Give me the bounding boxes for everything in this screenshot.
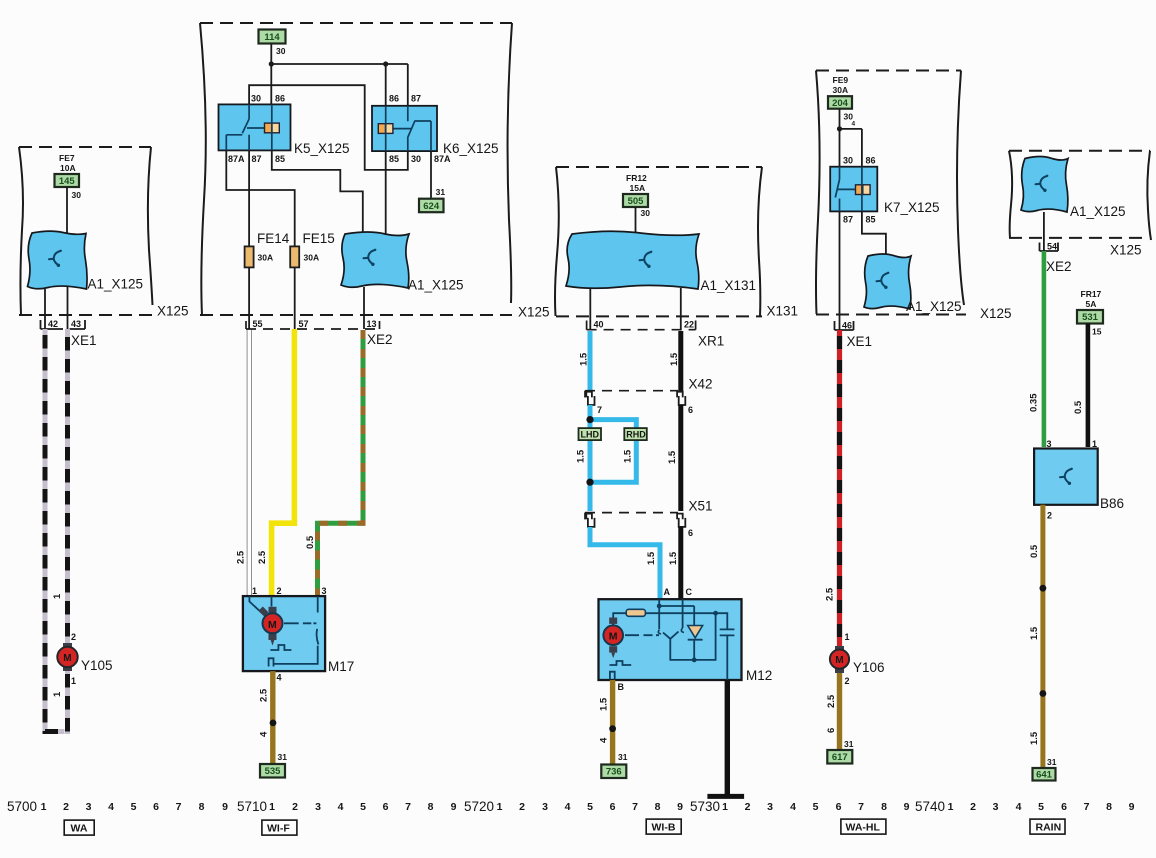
svg-text:87: 87 [411, 94, 421, 104]
svg-text:6: 6 [383, 801, 389, 813]
svg-text:8: 8 [199, 801, 205, 813]
svg-text:A: A [664, 587, 671, 597]
svg-text:XE2: XE2 [1046, 259, 1072, 274]
svg-text:31: 31 [436, 187, 446, 197]
svg-text:XR1: XR1 [698, 334, 724, 349]
svg-text:114: 114 [264, 32, 280, 43]
svg-text:6: 6 [610, 801, 616, 813]
svg-text:30: 30 [251, 94, 261, 104]
svg-text:4: 4 [599, 737, 610, 743]
svg-text:31: 31 [1047, 757, 1057, 767]
svg-text:3: 3 [315, 801, 321, 813]
svg-text:8: 8 [428, 801, 434, 813]
svg-text:Y105: Y105 [81, 658, 113, 673]
svg-text:3: 3 [86, 801, 92, 813]
svg-text:1.5: 1.5 [576, 449, 587, 463]
svg-text:3: 3 [993, 801, 999, 813]
svg-text:505: 505 [628, 196, 645, 207]
svg-text:K6_X125: K6_X125 [443, 141, 499, 156]
svg-text:A1_X131: A1_X131 [701, 278, 757, 293]
svg-text:B: B [618, 682, 625, 692]
svg-text:FR12: FR12 [626, 173, 647, 183]
svg-text:204: 204 [832, 98, 849, 109]
svg-text:2.5: 2.5 [259, 688, 270, 702]
svg-text:2: 2 [745, 801, 751, 813]
svg-text:4: 4 [790, 801, 796, 813]
svg-text:30: 30 [641, 208, 651, 218]
svg-text:0.5: 0.5 [1073, 400, 1084, 414]
svg-text:A1_X125: A1_X125 [88, 277, 144, 292]
svg-text:8: 8 [1106, 801, 1112, 813]
svg-text:RHD: RHD [626, 430, 646, 440]
svg-text:2: 2 [292, 801, 298, 813]
svg-text:7: 7 [1084, 801, 1090, 813]
svg-text:1: 1 [845, 632, 850, 642]
svg-text:6: 6 [153, 801, 159, 813]
svg-text:4: 4 [277, 673, 282, 683]
svg-text:1.5: 1.5 [646, 551, 657, 565]
svg-text:4: 4 [108, 801, 114, 813]
svg-text:87: 87 [843, 215, 853, 225]
svg-text:1.5: 1.5 [623, 449, 634, 463]
svg-text:4: 4 [852, 121, 856, 128]
svg-text:1.5: 1.5 [668, 551, 679, 565]
svg-text:Y106: Y106 [853, 660, 885, 675]
svg-text:535: 535 [265, 766, 282, 777]
svg-text:9: 9 [451, 801, 457, 813]
svg-text:1: 1 [52, 593, 63, 599]
svg-text:M12: M12 [746, 668, 772, 683]
svg-text:736: 736 [606, 767, 622, 778]
svg-text:85: 85 [389, 154, 399, 164]
svg-text:1: 1 [269, 801, 275, 813]
svg-text:7: 7 [858, 801, 864, 813]
svg-text:31: 31 [844, 739, 854, 749]
svg-text:6: 6 [836, 801, 842, 813]
svg-text:5700: 5700 [7, 799, 37, 814]
svg-text:86: 86 [389, 94, 399, 104]
svg-text:531: 531 [1082, 312, 1099, 323]
svg-text:7: 7 [176, 801, 182, 813]
svg-text:9: 9 [1129, 801, 1135, 813]
svg-text:FE7: FE7 [59, 153, 75, 163]
svg-text:30A: 30A [304, 253, 320, 263]
svg-text:5: 5 [360, 801, 366, 813]
svg-text:M: M [268, 619, 277, 631]
svg-text:87: 87 [252, 154, 262, 164]
svg-text:FE15: FE15 [303, 231, 335, 246]
svg-text:30A: 30A [833, 85, 849, 95]
svg-text:2.5: 2.5 [236, 550, 247, 564]
svg-text:XE2: XE2 [367, 332, 393, 347]
svg-text:FE14: FE14 [257, 231, 290, 246]
svg-text:22: 22 [684, 320, 694, 330]
svg-text:X131: X131 [767, 304, 799, 319]
svg-text:5740: 5740 [915, 799, 945, 814]
svg-text:4: 4 [338, 801, 344, 813]
svg-text:1: 1 [41, 801, 47, 813]
svg-text:6: 6 [826, 728, 837, 733]
svg-text:1: 1 [252, 586, 257, 596]
svg-text:617: 617 [832, 752, 848, 763]
svg-text:86: 86 [275, 94, 285, 104]
svg-text:1.5: 1.5 [579, 352, 590, 366]
svg-text:RAIN: RAIN [1036, 822, 1062, 834]
svg-text:3: 3 [767, 801, 773, 813]
svg-text:XE1: XE1 [71, 333, 97, 348]
svg-text:3: 3 [542, 801, 548, 813]
svg-text:2: 2 [63, 801, 69, 813]
svg-text:2: 2 [277, 586, 282, 596]
svg-text:9: 9 [222, 801, 228, 813]
svg-text:7: 7 [405, 801, 411, 813]
svg-text:30: 30 [411, 154, 421, 164]
svg-text:43: 43 [71, 319, 81, 329]
svg-text:XE1: XE1 [847, 334, 873, 349]
svg-text:2.5: 2.5 [257, 550, 268, 564]
svg-text:85: 85 [275, 154, 285, 164]
svg-text:31: 31 [278, 752, 288, 762]
svg-text:X42: X42 [689, 377, 713, 392]
svg-text:15: 15 [1092, 327, 1102, 337]
svg-text:85: 85 [866, 215, 876, 225]
svg-text:FR17: FR17 [1081, 289, 1102, 299]
svg-text:54: 54 [1047, 242, 1057, 252]
svg-text:1: 1 [497, 801, 503, 813]
svg-text:4: 4 [565, 801, 571, 813]
svg-text:7: 7 [597, 405, 602, 415]
svg-text:M: M [835, 655, 843, 666]
svg-text:5: 5 [813, 801, 819, 813]
svg-text:WA-HL: WA-HL [846, 822, 881, 834]
svg-text:1.5: 1.5 [1029, 626, 1040, 640]
svg-text:WI-F: WI-F [267, 823, 290, 835]
svg-text:5720: 5720 [464, 799, 494, 814]
svg-text:2.5: 2.5 [825, 587, 836, 601]
svg-text:55: 55 [253, 319, 263, 329]
svg-text:641: 641 [1036, 770, 1053, 781]
svg-text:2.5: 2.5 [826, 694, 837, 708]
svg-text:B86: B86 [1100, 496, 1124, 511]
svg-text:K5_X125: K5_X125 [294, 141, 350, 156]
svg-text:2: 2 [519, 801, 525, 813]
svg-text:X125: X125 [1110, 243, 1142, 258]
svg-text:46: 46 [842, 321, 852, 331]
svg-text:4: 4 [1016, 801, 1022, 813]
svg-text:13: 13 [367, 319, 377, 329]
svg-text:15A: 15A [630, 183, 646, 193]
svg-text:30: 30 [843, 156, 853, 166]
svg-text:9: 9 [904, 801, 910, 813]
svg-text:5: 5 [1038, 801, 1044, 813]
svg-text:3: 3 [322, 586, 327, 596]
svg-text:6: 6 [688, 405, 693, 415]
svg-text:5730: 5730 [690, 799, 720, 814]
svg-text:6: 6 [688, 528, 693, 538]
svg-text:30A: 30A [258, 253, 274, 263]
svg-text:A1_X125: A1_X125 [1070, 204, 1126, 219]
svg-text:WA: WA [71, 823, 88, 835]
svg-text:X125: X125 [157, 304, 189, 319]
svg-text:A1_X125: A1_X125 [408, 278, 464, 293]
svg-text:86: 86 [866, 156, 876, 166]
svg-text:30: 30 [276, 46, 286, 56]
svg-text:K7_X125: K7_X125 [884, 200, 940, 215]
svg-text:1: 1 [71, 676, 76, 686]
svg-text:2: 2 [71, 632, 76, 642]
svg-text:5A: 5A [1086, 299, 1097, 309]
svg-text:0.35: 0.35 [1029, 393, 1040, 412]
svg-text:1: 1 [948, 801, 954, 813]
svg-text:1: 1 [52, 691, 63, 697]
svg-text:1.5: 1.5 [1029, 731, 1040, 745]
svg-text:42: 42 [48, 319, 58, 329]
svg-text:40: 40 [594, 320, 604, 330]
svg-text:M17: M17 [328, 659, 354, 674]
svg-text:LHD: LHD [581, 430, 600, 440]
svg-text:7: 7 [632, 801, 638, 813]
svg-text:1.5: 1.5 [669, 352, 680, 366]
svg-text:X51: X51 [689, 499, 713, 514]
svg-text:0.5: 0.5 [1029, 544, 1040, 558]
svg-text:624: 624 [423, 201, 440, 212]
svg-text:1: 1 [722, 801, 728, 813]
svg-text:145: 145 [59, 176, 76, 187]
svg-text:8: 8 [881, 801, 887, 813]
svg-text:FE9: FE9 [833, 75, 849, 85]
svg-text:A1_X125: A1_X125 [906, 299, 962, 314]
svg-text:9: 9 [677, 801, 683, 813]
svg-text:M: M [63, 653, 71, 664]
svg-text:6: 6 [1061, 801, 1067, 813]
svg-text:31: 31 [618, 752, 628, 762]
svg-text:8: 8 [655, 801, 661, 813]
svg-text:WI-B: WI-B [652, 822, 676, 834]
svg-text:X125: X125 [518, 305, 550, 320]
svg-text:2: 2 [1047, 511, 1052, 521]
svg-text:57: 57 [299, 319, 309, 329]
svg-text:87A: 87A [228, 154, 245, 164]
svg-text:0.5: 0.5 [305, 535, 316, 549]
svg-text:M: M [609, 631, 618, 643]
svg-text:30: 30 [72, 190, 82, 200]
svg-text:1.5: 1.5 [599, 697, 610, 711]
svg-text:2: 2 [970, 801, 976, 813]
svg-text:5: 5 [587, 801, 593, 813]
svg-text:10A: 10A [60, 163, 76, 173]
svg-text:2: 2 [845, 676, 850, 686]
svg-text:4: 4 [259, 731, 270, 737]
svg-text:5: 5 [131, 801, 137, 813]
svg-text:1.5: 1.5 [667, 450, 678, 464]
svg-text:5710: 5710 [237, 799, 267, 814]
svg-text:X125: X125 [980, 306, 1012, 321]
svg-text:C: C [686, 587, 693, 597]
